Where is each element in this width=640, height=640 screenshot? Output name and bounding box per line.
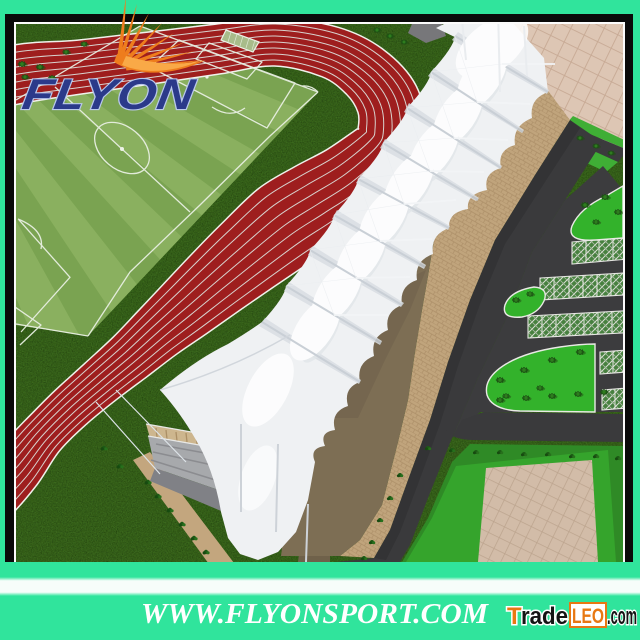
svg-text:FLYON: FLYON (19, 71, 199, 119)
svg-text:.com: .com (607, 603, 637, 630)
svg-text:LEO: LEO (572, 605, 604, 628)
svg-text:rade: rade (521, 603, 568, 630)
svg-text:WWW.FLYONSPORT.COM: WWW.FLYONSPORT.COM (141, 599, 490, 630)
svg-text:T: T (507, 603, 522, 630)
